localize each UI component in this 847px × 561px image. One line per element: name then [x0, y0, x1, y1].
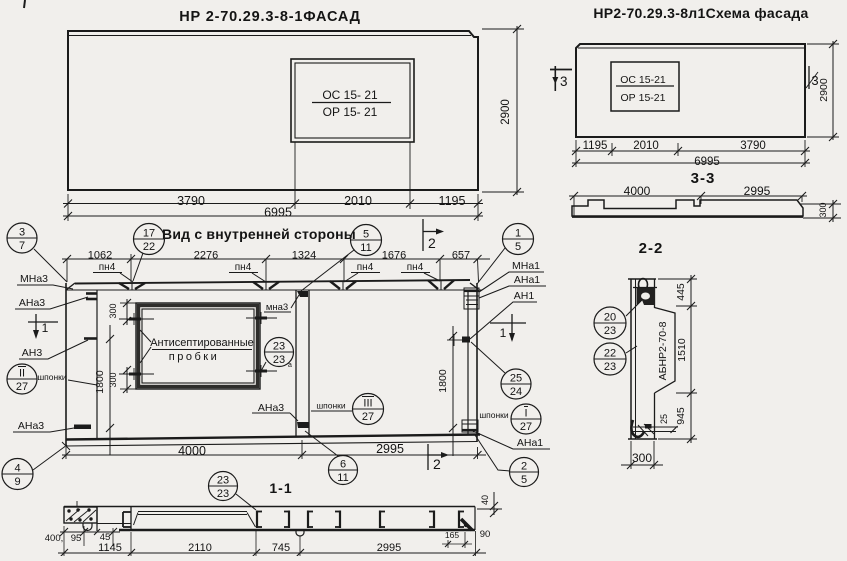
svg-text:шпонки: шпонки [479, 410, 509, 420]
svg-text:6995: 6995 [694, 156, 720, 168]
svg-text:ОС 15- 21: ОС 15- 21 [322, 88, 378, 102]
svg-text:2: 2 [428, 235, 436, 251]
svg-text:ОР 15-21: ОР 15-21 [621, 92, 666, 104]
svg-text:2: 2 [433, 456, 441, 472]
svg-text:165: 165 [445, 530, 459, 540]
svg-text:300: 300 [632, 451, 652, 465]
svg-text:4000: 4000 [624, 184, 651, 198]
svg-text:1062: 1062 [88, 250, 112, 262]
svg-text:745: 745 [272, 542, 290, 554]
svg-text:1: 1 [42, 321, 49, 335]
svg-text:2-2: 2-2 [639, 240, 664, 257]
svg-text:МНа1: МНа1 [512, 260, 540, 272]
svg-text:АНа3: АНа3 [18, 420, 44, 432]
svg-text:АН1: АН1 [514, 290, 535, 302]
svg-text:27: 27 [520, 421, 532, 433]
svg-text:2995: 2995 [376, 442, 404, 456]
svg-text:пн4: пн4 [99, 262, 116, 273]
svg-text:2010: 2010 [633, 140, 659, 152]
svg-text:23: 23 [273, 354, 285, 366]
svg-text:АНа1: АНа1 [514, 274, 540, 286]
svg-text:АНа3: АНа3 [19, 297, 45, 309]
svg-text:27: 27 [16, 381, 28, 393]
svg-text:23: 23 [217, 475, 229, 487]
svg-text:22: 22 [143, 241, 155, 253]
svg-text:АБНР2-70-8: АБНР2-70-8 [657, 321, 669, 380]
svg-text:4: 4 [14, 463, 20, 475]
svg-text:3-3: 3-3 [691, 170, 716, 187]
svg-text:95: 95 [71, 533, 82, 544]
svg-text:23: 23 [217, 488, 229, 500]
svg-text:АН3: АН3 [22, 347, 43, 359]
svg-text:7: 7 [19, 240, 25, 252]
svg-text:3790: 3790 [740, 140, 766, 152]
svg-text:9: 9 [14, 476, 20, 488]
svg-text:5: 5 [363, 229, 369, 241]
svg-text:25: 25 [659, 414, 669, 424]
svg-text:11: 11 [337, 472, 348, 484]
svg-text:6995: 6995 [264, 206, 292, 220]
svg-text:5: 5 [521, 474, 527, 486]
svg-text:пн4: пн4 [407, 262, 424, 273]
svg-text:НР2-70.29.3-8л1Схема фасада: НР2-70.29.3-8л1Схема фасада [593, 5, 808, 21]
svg-text:пн4: пн4 [235, 262, 252, 273]
svg-text:1510: 1510 [676, 338, 688, 362]
svg-text:Антисептированные: Антисептированные [150, 337, 254, 349]
svg-text:23: 23 [604, 325, 616, 337]
svg-text:а: а [288, 362, 292, 369]
svg-text:22: 22 [604, 348, 616, 360]
svg-text:27: 27 [362, 411, 374, 423]
svg-text:400,: 400, [45, 533, 64, 544]
svg-text:1800: 1800 [94, 370, 106, 394]
svg-text:АНа3: АНа3 [258, 402, 284, 414]
svg-text:17: 17 [143, 228, 155, 240]
svg-text:2995: 2995 [744, 184, 771, 198]
svg-text:I: I [524, 408, 527, 420]
svg-text:3790: 3790 [177, 194, 205, 208]
svg-text:2110: 2110 [188, 542, 212, 554]
svg-text:II: II [19, 368, 25, 380]
svg-text:мна3: мна3 [266, 302, 288, 313]
svg-text:3: 3 [560, 74, 568, 89]
svg-text:пн4: пн4 [357, 262, 374, 273]
svg-text:90: 90 [480, 529, 491, 540]
svg-text:1800: 1800 [437, 369, 449, 393]
svg-text:2995: 2995 [377, 542, 401, 554]
svg-text:4000: 4000 [178, 444, 206, 458]
svg-text:23: 23 [604, 361, 616, 373]
svg-text:НР 2-70.29.3-8-1ФАСАД: НР 2-70.29.3-8-1ФАСАД [179, 9, 361, 25]
svg-text:III: III [363, 398, 372, 410]
svg-text:2900: 2900 [500, 99, 512, 125]
svg-text:МНа3: МНа3 [20, 273, 48, 285]
svg-text:445: 445 [675, 283, 687, 301]
svg-text:20: 20 [604, 312, 616, 324]
svg-text:2: 2 [521, 461, 527, 473]
svg-text:5: 5 [515, 241, 521, 253]
svg-text:1-1: 1-1 [269, 480, 292, 496]
svg-text:6: 6 [340, 459, 346, 471]
svg-text:11: 11 [360, 242, 371, 254]
svg-text:657: 657 [452, 250, 470, 262]
svg-text:2276: 2276 [194, 250, 218, 262]
svg-text:300: 300 [108, 303, 118, 318]
svg-text:1145: 1145 [98, 542, 122, 554]
svg-text:24: 24 [510, 386, 522, 398]
svg-text:ОР 15- 21: ОР 15- 21 [323, 105, 378, 119]
svg-text:40: 40 [480, 495, 490, 505]
svg-text:25: 25 [510, 373, 522, 385]
svg-text:1676: 1676 [382, 250, 406, 262]
svg-text:шпонки: шпонки [316, 401, 346, 411]
svg-text:ОС 15-21: ОС 15-21 [620, 74, 666, 86]
svg-text:945: 945 [675, 407, 687, 425]
svg-text:АНа1: АНа1 [517, 437, 543, 449]
svg-text:1195: 1195 [439, 194, 466, 208]
svg-text:1195: 1195 [583, 140, 608, 152]
svg-text:300: 300 [818, 202, 828, 217]
svg-text:3: 3 [19, 227, 25, 239]
svg-text:23: 23 [273, 341, 285, 353]
svg-text:шпонки: шпонки [37, 372, 67, 382]
svg-text:1: 1 [515, 228, 521, 240]
svg-text:2010: 2010 [344, 194, 372, 208]
svg-text:2900: 2900 [818, 78, 830, 102]
svg-text:1: 1 [500, 326, 507, 340]
svg-text:1324: 1324 [292, 250, 316, 262]
svg-text:Вид с внутренней стороны: Вид с внутренней стороны [162, 226, 356, 242]
svg-text:пробки: пробки [169, 351, 219, 363]
